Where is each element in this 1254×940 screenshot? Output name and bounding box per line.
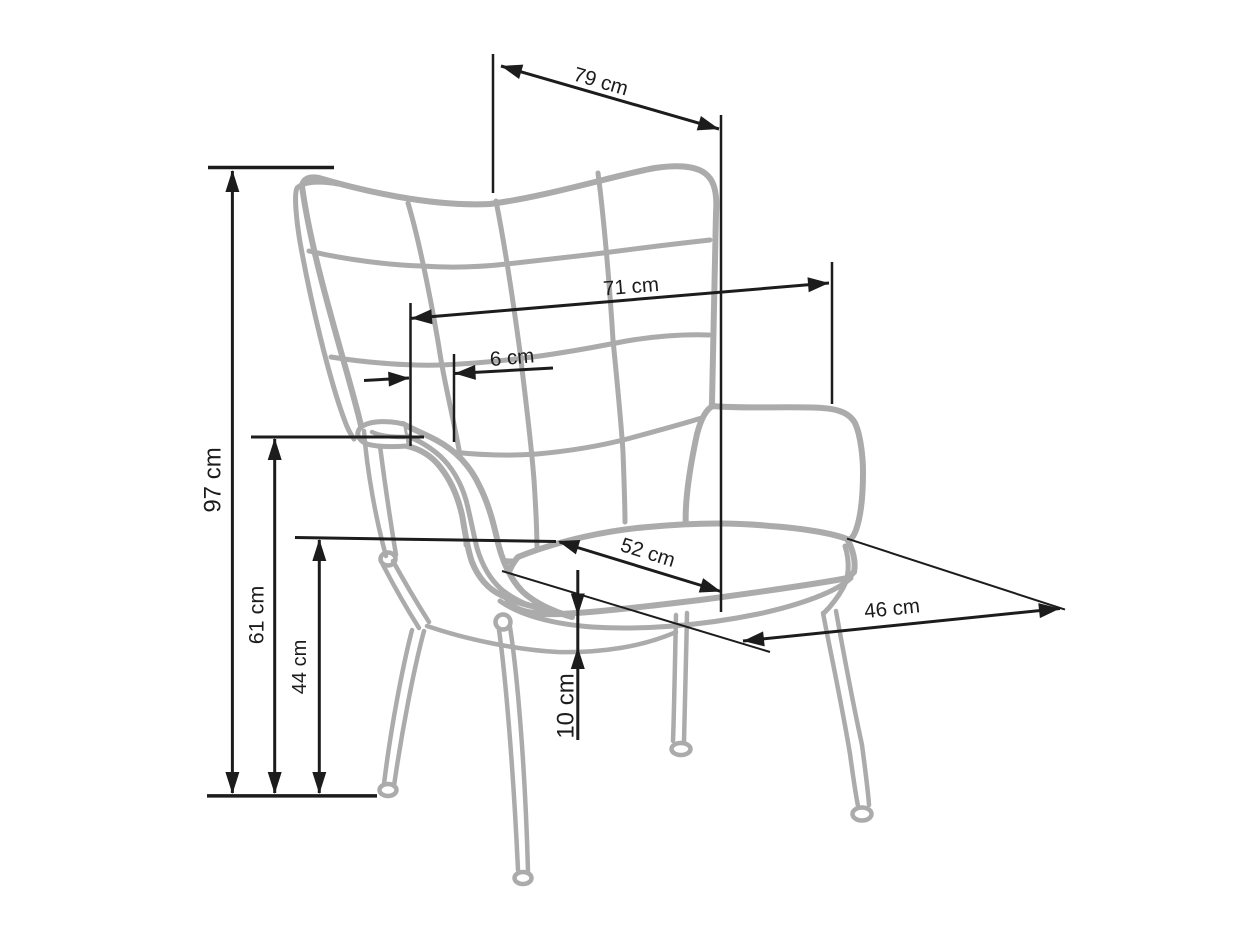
svg-text:97 cm: 97 cm	[199, 447, 226, 512]
svg-text:46 cm: 46 cm	[863, 594, 921, 623]
svg-text:10 cm: 10 cm	[552, 673, 579, 738]
svg-text:71 cm: 71 cm	[602, 273, 660, 300]
svg-text:44 cm: 44 cm	[289, 640, 311, 694]
svg-text:61 cm: 61 cm	[245, 586, 269, 645]
svg-text:6 cm: 6 cm	[489, 344, 535, 371]
